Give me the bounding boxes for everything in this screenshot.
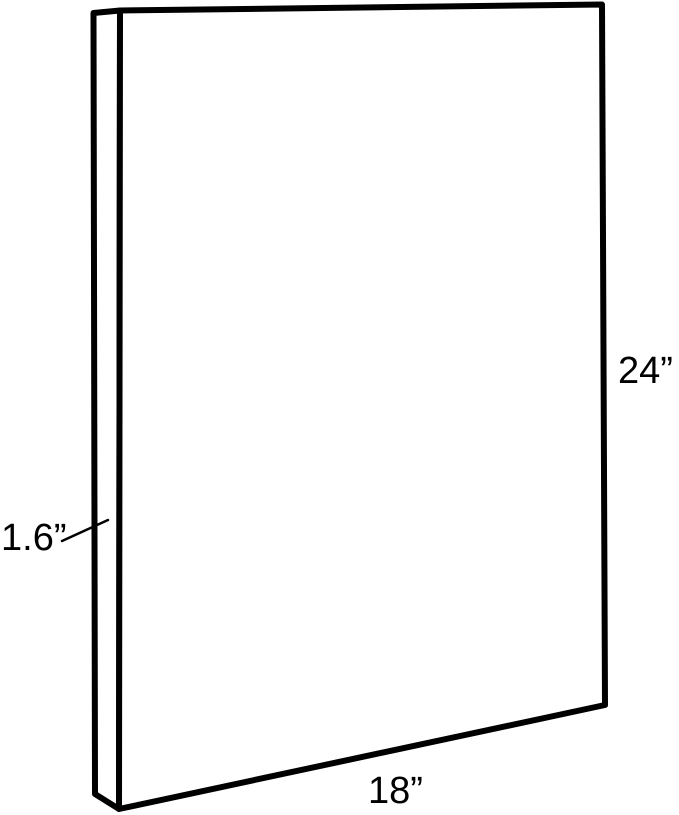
depth-dimension-label: 1.6” — [1, 517, 66, 559]
diagram-canvas: 24” 18” 1.6” — [0, 0, 679, 815]
width-dimension-label: 18” — [368, 770, 423, 812]
panel-dimension-diagram: 24” 18” 1.6” — [0, 0, 679, 815]
height-dimension-label: 24” — [618, 350, 673, 392]
panel-front-face — [119, 5, 605, 810]
panel-side-face — [94, 11, 121, 810]
